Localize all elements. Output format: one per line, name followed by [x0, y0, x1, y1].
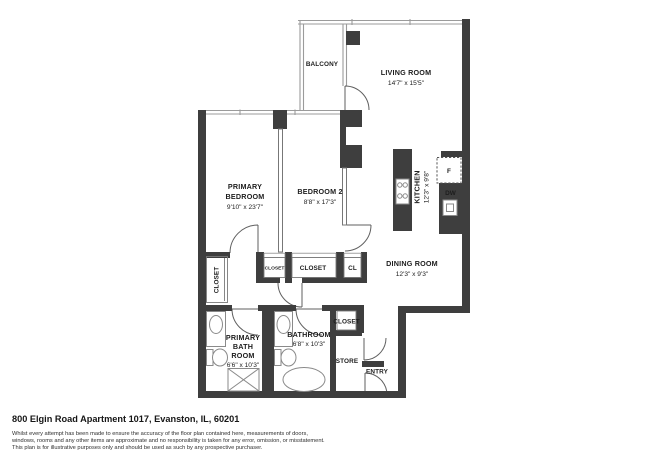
- living-room-dims: 14'7" x 15'5": [388, 80, 425, 87]
- floor-plan-page: BALCONY LIVING ROOM 14'7" x 15'5" PRIMAR…: [0, 0, 650, 460]
- tall-closet-label: CLOSET: [214, 267, 221, 294]
- main-closet-label: CLOSET: [300, 265, 327, 272]
- dining-room-label: DINING ROOM: [386, 259, 438, 268]
- bathtub: [283, 368, 325, 392]
- footer: 800 Elgin Road Apartment 1017, Evanston,…: [11, 414, 325, 451]
- primary-bedroom-label-2: BEDROOM: [226, 192, 265, 201]
- store-door: [364, 338, 386, 360]
- bathroom-dims: 6'8" x 10'3": [293, 341, 326, 348]
- primary-bedroom-door: [230, 225, 258, 253]
- dishwasher-label: DW: [445, 190, 457, 197]
- door-arcs: [230, 86, 387, 395]
- cl-closet-label: CL: [348, 265, 357, 272]
- balcony-label: BALCONY: [306, 61, 339, 68]
- bedroom2-dims: 8'8" x 17'3": [304, 199, 337, 206]
- column: [346, 31, 360, 45]
- primary-bath-door: [232, 309, 258, 335]
- living-room-label: LIVING ROOM: [381, 68, 432, 77]
- primary-bath-vanity: [207, 312, 226, 347]
- bathroom-label: BATHROOM: [287, 330, 330, 339]
- bedroom2-label: BEDROOM 2: [297, 187, 342, 196]
- bedroom2-door: [345, 225, 371, 251]
- hallway-door: [278, 283, 302, 307]
- disclaimer-line-3: This plan is for illustrative purposes o…: [12, 445, 263, 451]
- kitchen-sink: [443, 200, 457, 216]
- kitchen-dims: 12'3" x 9'8": [424, 170, 431, 203]
- primary-bath-label-3: ROOM: [231, 351, 254, 360]
- wall-niche: [346, 127, 362, 145]
- small-closet-label: CLOSET: [265, 266, 285, 272]
- store-label: STORE: [336, 358, 359, 365]
- primary-bath-label-2: BATH: [233, 342, 253, 351]
- address-text: 800 Elgin Road Apartment 1017, Evanston,…: [12, 414, 239, 424]
- entry-label: ENTRY: [366, 369, 389, 376]
- cooktop: [396, 179, 409, 204]
- bath-closet-label: CLOSET: [333, 319, 360, 326]
- primary-bedroom-label-1: PRIMARY: [228, 182, 262, 191]
- bathroom-vanity: [275, 312, 293, 347]
- disclaimer-line-1: Whilst every attempt has been made to en…: [12, 431, 308, 437]
- floor-plan-canvas: BALCONY LIVING ROOM 14'7" x 15'5" PRIMAR…: [0, 0, 650, 460]
- dining-room-dims: 12'3" x 9'3": [396, 271, 429, 278]
- bathroom-toilet: [281, 349, 296, 366]
- primary-bath-dims: 6'6" x 10'3": [227, 362, 260, 369]
- kitchen-label: KITCHEN: [413, 170, 422, 203]
- primary-bath-label-1: PRIMARY: [226, 333, 260, 342]
- primary-bedroom-dims: 9'10" x 23'7": [227, 204, 264, 211]
- primary-bath-toilet: [213, 349, 228, 366]
- fridge-label: F: [447, 168, 451, 175]
- balcony-door: [345, 86, 369, 110]
- disclaimer-line-2: windows, rooms and any other items are a…: [11, 438, 325, 444]
